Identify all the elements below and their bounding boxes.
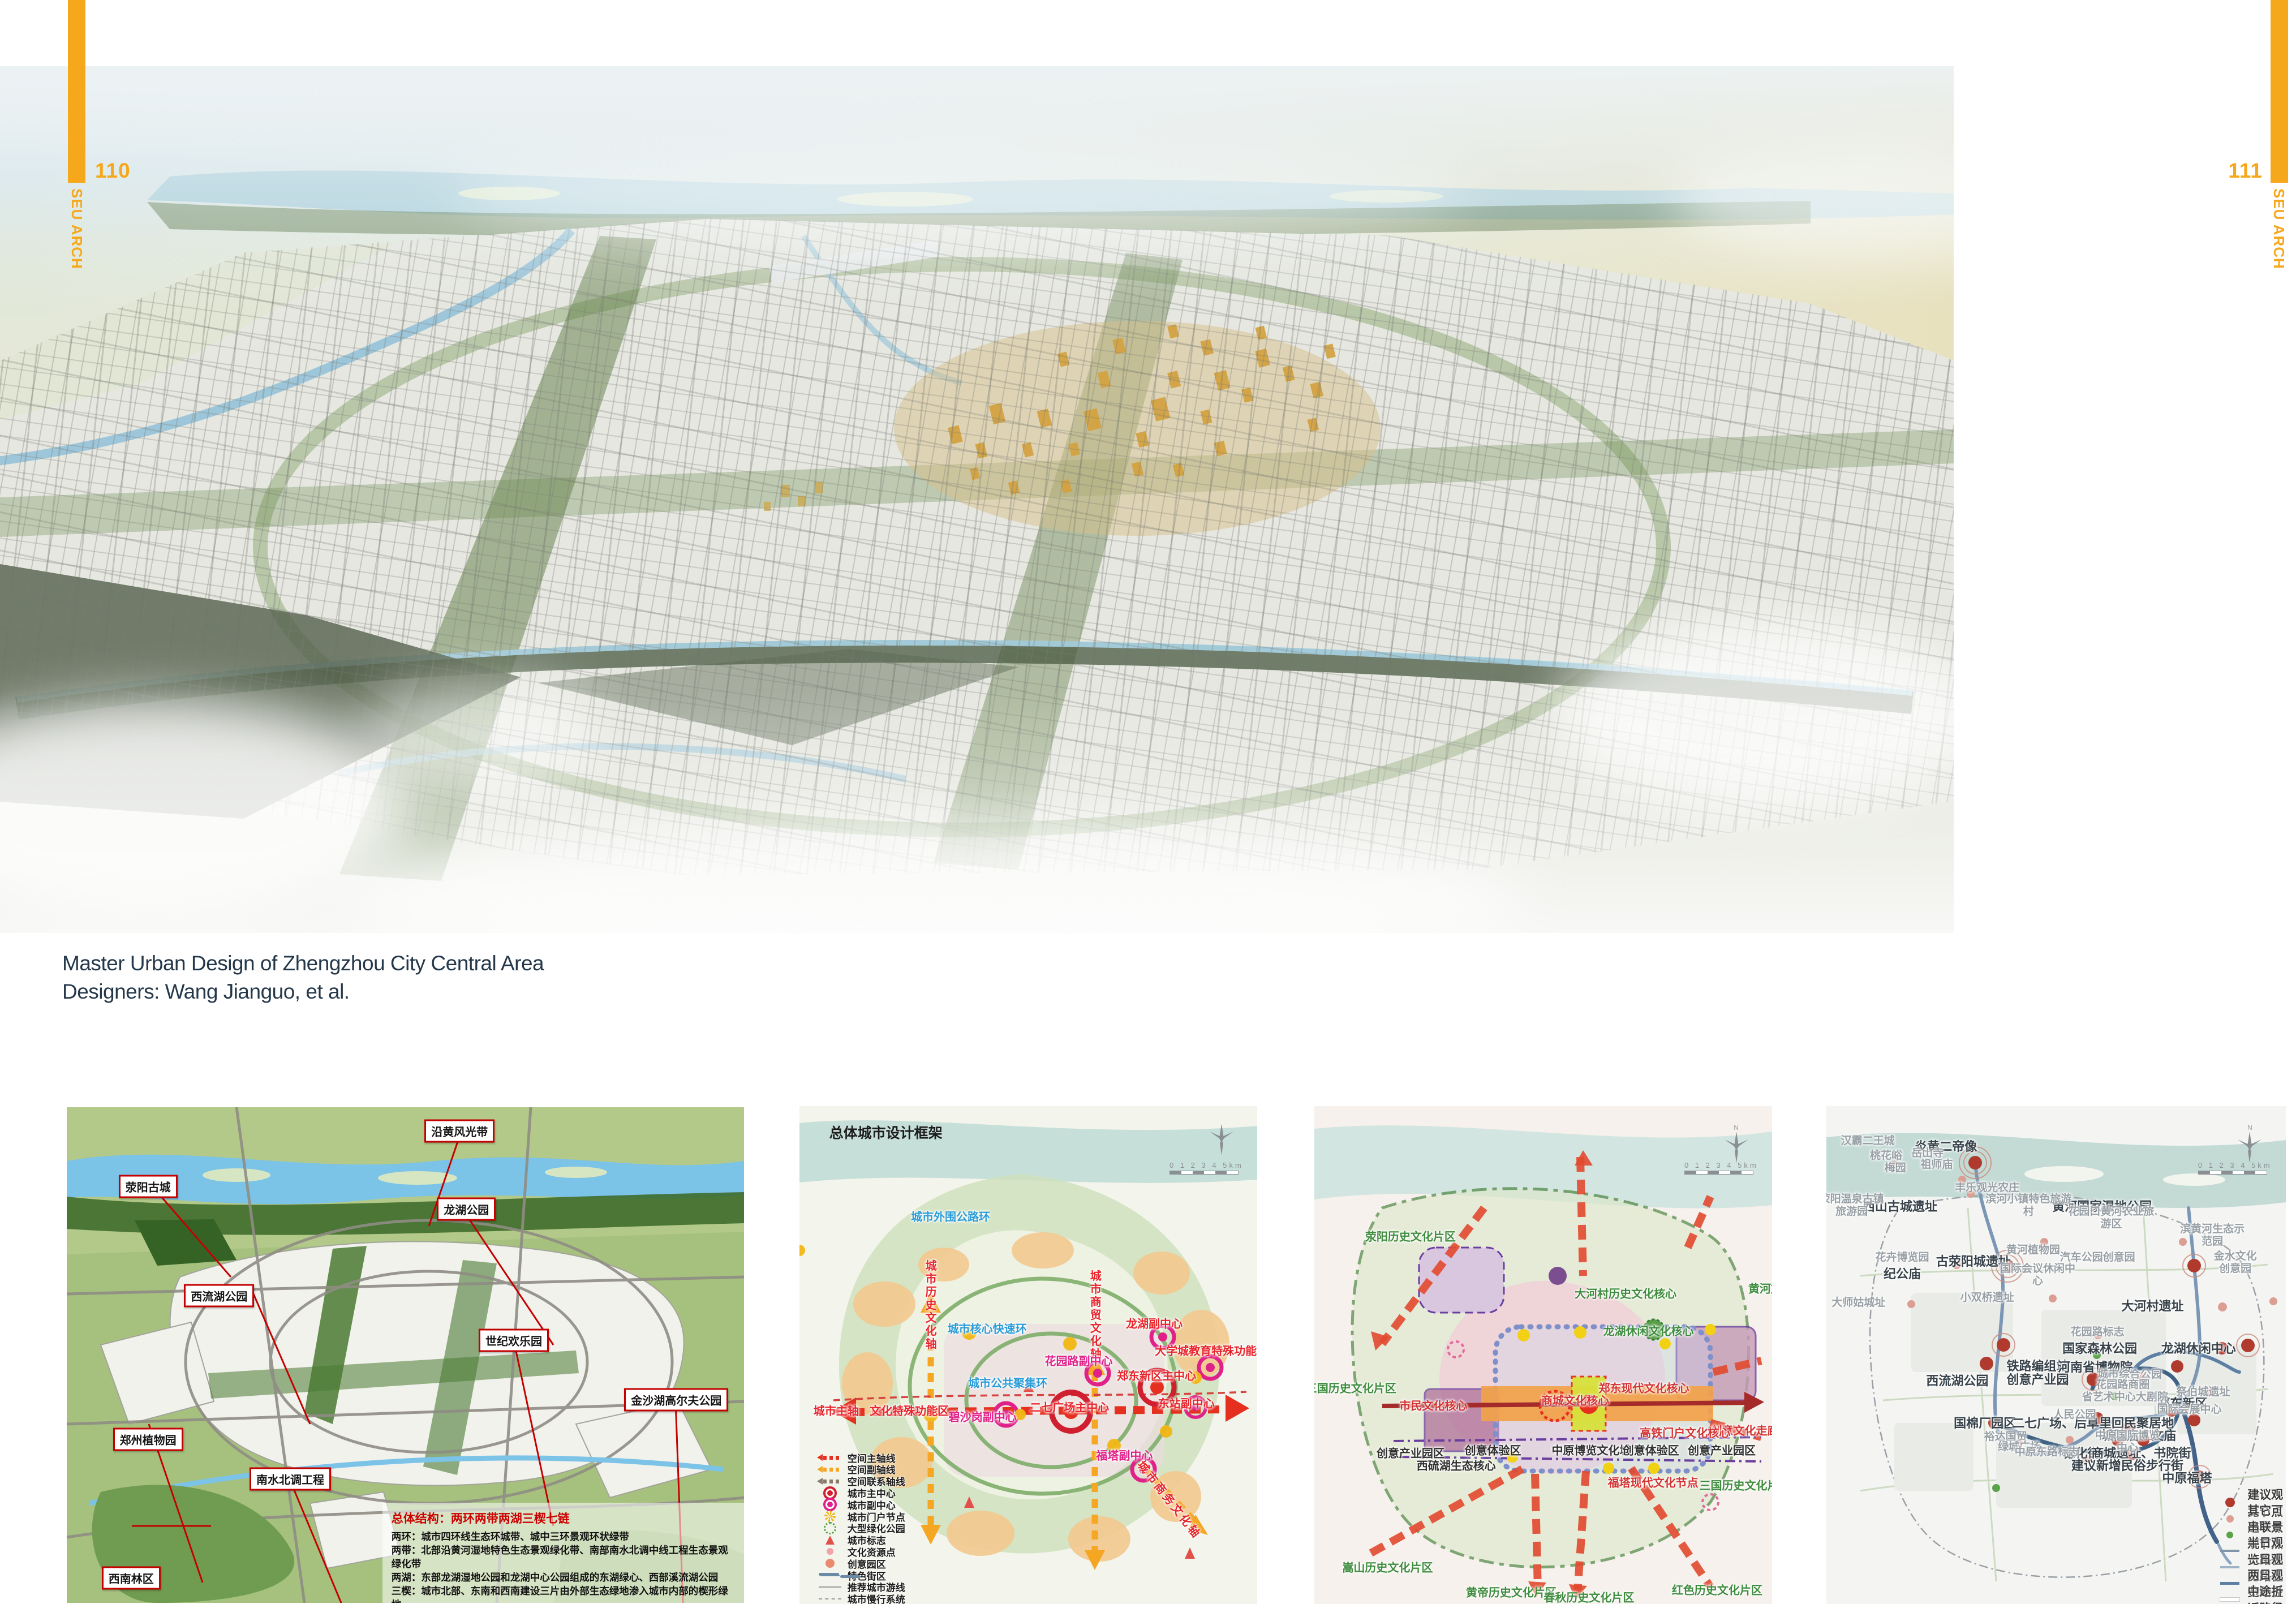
structure-title: 总体结构：两环两带两湖三楔七链 [392,1510,736,1526]
map-label: 文化特殊功能区 [870,1401,949,1418]
structure-line: 两湖：东部龙湖湿地公园和龙湖中心公园组成的东湖绿心、西部溪流湖公园 [392,1571,736,1584]
map-callout-box: 西南林区 [102,1567,161,1590]
legend-swatch-icon [817,1452,843,1463]
map-label: 嵩山历史文化片区 [1342,1559,1433,1575]
map-label: 创意产业园区 [1688,1442,1756,1458]
map-label-minor: 花卉博览园 [1875,1252,1929,1264]
map-label-minor: 荥阳温泉古镇旅游园 [1826,1193,1889,1218]
legend-swatch-icon [817,1511,843,1522]
compass-icon [1209,1124,1235,1158]
map-label-minor: 国际会议休闲中心 [1996,1263,2080,1288]
map-label-minor: 国际会展中心 [2157,1404,2221,1416]
map-label: 高铁门户文化核心 [1640,1424,1730,1440]
legend-item: 城市副中心 [817,1499,905,1511]
project-title: Master Urban Design of Zhengzhou City Ce… [62,949,544,978]
map-label-minor: 花园路商圈 [2096,1379,2149,1391]
map-label-major: 国棉厂园区 [1954,1413,2016,1431]
map-callout-box: 龙湖公园 [437,1197,496,1220]
right-page-accent-bar [2271,0,2288,183]
legend-item: 城市标志 [817,1534,905,1546]
panel2-legend: 空间主轴线 空间副轴线 空间联系轴线 城市主中心 [817,1452,905,1604]
map-label: 大学城教育特殊功能区 [1155,1342,1257,1358]
structure-lines: 两环：城市四环线生态环城带、城中三环景观环状绿带两带：北部沿黄河湿地特色生态景观… [392,1530,736,1603]
left-page-number: 110 [95,159,131,183]
legend-item: 城市门户节点 [817,1511,905,1523]
legend-label: 中途折返路径 [2247,1583,2286,1604]
map-label-minor: 中原东路标志 [2015,1446,2079,1459]
right-side-label: SEU ARCH [2270,188,2288,273]
scale-bar: 0 1 2 3 4 5km [1170,1161,1244,1175]
legend-swatch-icon [2217,1529,2243,1541]
legend-item: 城市主中心 [817,1487,905,1499]
legend-item: 城市慢行系统 [817,1593,905,1604]
legend-item: 空间副轴线 [817,1464,905,1476]
map-label: 荥阳历史文化片区 [1365,1227,1456,1244]
map-label: 市民文化核心 [1399,1397,1467,1413]
legend-swatch-icon [817,1581,843,1593]
legend-item: 文化资源点 [817,1546,905,1558]
legend-swatch-icon [817,1476,843,1487]
map-label: 龙湖副中心 [1126,1314,1183,1331]
map-label: 西硫湖生态核心 [1417,1456,1496,1473]
map-label-minor: 黄河植物园 [2006,1244,2060,1257]
panel-touring-route-map: 炎黄二帝像西山古城遗址黄河国家湿地公园古荥阳城遗址纪公庙大河村遗址国家森林公园龙… [1826,1106,2286,1604]
legend-item: 空间主轴线 [817,1452,905,1464]
legend-item: 大型绿化公园 [817,1523,905,1534]
map-callout-box: 世纪欢乐园 [479,1328,549,1352]
map-callout-box: 荥阳古城 [119,1175,178,1198]
legend-swatch-icon [2217,1577,2243,1589]
legend-item: 特色街区 [817,1569,905,1581]
map-label: 二七广场主中心 [1030,1398,1109,1414]
map-label-major: 大河村遗址 [2122,1296,2184,1314]
right-page-number: 111 [2226,159,2263,183]
cultural-map-art [1314,1106,1772,1604]
map-callout-box: 南水北调工程 [250,1468,331,1491]
structure-text-block: 总体结构：两环两带两湖三楔七链 两环：城市四环线生态环城带、城中三环景观环状绿带… [382,1503,744,1603]
map-label-major: 国家森林公园 [2062,1339,2137,1357]
legend-swatch-icon [817,1464,843,1475]
legend-swatch-icon [2217,1562,2243,1573]
scale-bar: 0 1 2 3 4 5km [2198,1161,2272,1175]
panel2-title: 总体城市设计框架 [829,1122,943,1142]
panel-design-framework-map: 总体城市设计框架 城市外围公路环城市历史文化轴城市核心快速环城市商贸文化轴龙湖副… [799,1106,1257,1604]
book-spread: 110 111 SEU ARCH SEU ARCH Master Urban D… [0,0,2296,1604]
legend-item: 空间联系轴线 [817,1475,905,1487]
cloud [362,677,600,790]
legend-swatch-icon [817,1593,843,1604]
legend-swatch-icon [817,1487,843,1499]
legend-swatch-icon [2217,1594,2243,1604]
map-label-minor: 滨黄河生态示范园 [2175,1223,2249,1248]
map-label-minor: 梅园 [1885,1162,1906,1175]
map-label: 商城文化核心 [1541,1392,1609,1408]
map-callout-box: 西流湖公园 [184,1284,254,1307]
map-label: 郑东现代文化核心 [1598,1379,1689,1396]
left-page-accent-bar [68,0,85,183]
map-label: 龙湖休闲文化核心 [1603,1322,1694,1339]
map-label-minor: 小双桥遗址 [1960,1292,2014,1304]
map-label: 城市主轴 [814,1401,859,1418]
map-label: 三国历史文化片区 [1314,1379,1396,1396]
legend-swatch-icon [817,1558,843,1569]
compass-icon: N [1723,1124,1749,1166]
map-label: 城市外围公路环 [911,1207,990,1224]
project-caption: Master Urban Design of Zhengzhou City Ce… [62,949,544,1006]
legend-swatch-icon [817,1534,843,1546]
legend-swatch-icon [2217,1497,2243,1508]
map-label: 黄河文 [1748,1280,1772,1296]
cloud [453,134,1471,247]
legend-item: 中途折返路径 [2217,1591,2286,1604]
map-label-minor: 省艺术中心大剧院 [2082,1391,2168,1404]
map-label-major: 龙湖休闲中心 [2161,1339,2236,1357]
map-label: 城市公共聚集环 [968,1374,1047,1391]
map-label-minor: 祖师庙 [1920,1159,1953,1171]
legend-item: 创意园区 [817,1558,905,1569]
map-label: 郑东新区主中心 [1117,1367,1196,1383]
map-label-major: 纪公庙 [1884,1264,1921,1282]
map-label-minor: 滨河小镇特色旅游村 [1983,1193,2074,1218]
legend-item: 推荐城市游线 [817,1581,905,1593]
left-side-label: SEU ARCH [68,188,85,273]
map-label-minor: 祭伯城遗址 [2176,1386,2230,1399]
legend-swatch-icon [817,1523,843,1534]
map-callout-box: 沿黄风光带 [424,1120,495,1143]
legend-swatch-icon [817,1546,843,1557]
map-label: 花园路副中心 [1044,1352,1112,1368]
map-label-minor: 中原国际博览中心 [2093,1430,2161,1455]
aerial-render-image [0,66,1954,933]
map-label-minor: 金水文化创意园 [2210,1250,2260,1275]
map-label: 创意体验区 [1465,1442,1521,1458]
map-label: 东站副中心 [1158,1395,1215,1411]
map-label-minor: 花园口黄河农业旅游区 [2063,1206,2159,1231]
map-label: 城市历史文化轴 [922,1260,938,1351]
map-label: 三国历史文化片区 [1699,1476,1772,1493]
map-label: 城市核心快速环 [948,1319,1027,1336]
map-label-minor: 丰乐观光农庄 [1955,1182,2019,1194]
legend-label: 城市慢行系统 [848,1592,905,1604]
map-label: 大河村历史文化核心 [1575,1285,1676,1301]
map-label: 红色历史文化片区 [1672,1581,1762,1597]
map-label-minor: 花园路标志 [2071,1326,2125,1339]
compass-icon: N [2237,1124,2263,1166]
project-designers: Designers: Wang Jianguo, et al. [62,978,544,1006]
map-label: 福塔现代文化节点 [1608,1474,1699,1490]
legend-swatch-icon [2217,1545,2243,1556]
panel-cultural-framework-map: 荥阳历史文化片区大河村历史文化核心黄河文龙湖休闲文化核心三国历史文化片区郑东现代… [1314,1106,1772,1604]
map-label-minor: 人民公园 [2053,1409,2096,1421]
structure-line: 两环：城市四环线生态环城带、城中三环景观环状绿带 [392,1530,736,1543]
panel4-legend: 建议观览节点 其它可选节点 串联景观节点 半日观览路径 [2217,1494,2286,1604]
structure-line: 两带：北部沿黄河湿地特色生态景观绿化带、南部南水北调中线工程生态景观绿化带 [392,1543,736,1571]
scale-bar: 0 1 2 3 4 5km [1684,1161,1758,1175]
map-label-minor: 大师姑城址 [1831,1297,1885,1309]
map-label-minor: 岳山寺 [1911,1147,1944,1160]
map-label-minor: 汽车公园创意园 [2060,1252,2135,1264]
map-label-minor: 汉霸二王城 [1841,1135,1895,1147]
map-label: 黄帝历史文化片区 [1466,1584,1557,1600]
map-label: 春秋历史文化片区 [1543,1588,1634,1604]
panel-overall-structure-map: 沿黄风光带荥阳古城龙湖公园西流湖公园世纪欢乐园金沙湖高尔夫公园郑州植物园南水北调… [67,1107,744,1603]
map-label-minor: 桃花峪 [1870,1150,1902,1162]
map-label-major: 中原福塔 [2162,1468,2212,1486]
map-label: 中原博览文化城 [1551,1442,1631,1458]
map-label: 创意体验区 [1623,1442,1679,1458]
map-label: 城市商贸文化轴 [1086,1270,1103,1361]
legend-swatch-icon [817,1569,843,1581]
legend-swatch-icon [2217,1513,2243,1524]
map-label-major: 西流湖公园 [1926,1371,1988,1389]
map-callout-box: 郑州植物园 [113,1427,183,1451]
structure-line: 三楔：城市北部、东南和西南建设三片由外部生态绿地渗入城市内部的楔形绿地 [392,1584,736,1603]
map-label: 碧沙岗副中心 [949,1408,1017,1425]
legend-swatch-icon [817,1499,843,1510]
map-callout-box: 金沙湖高尔夫公园 [624,1388,728,1411]
